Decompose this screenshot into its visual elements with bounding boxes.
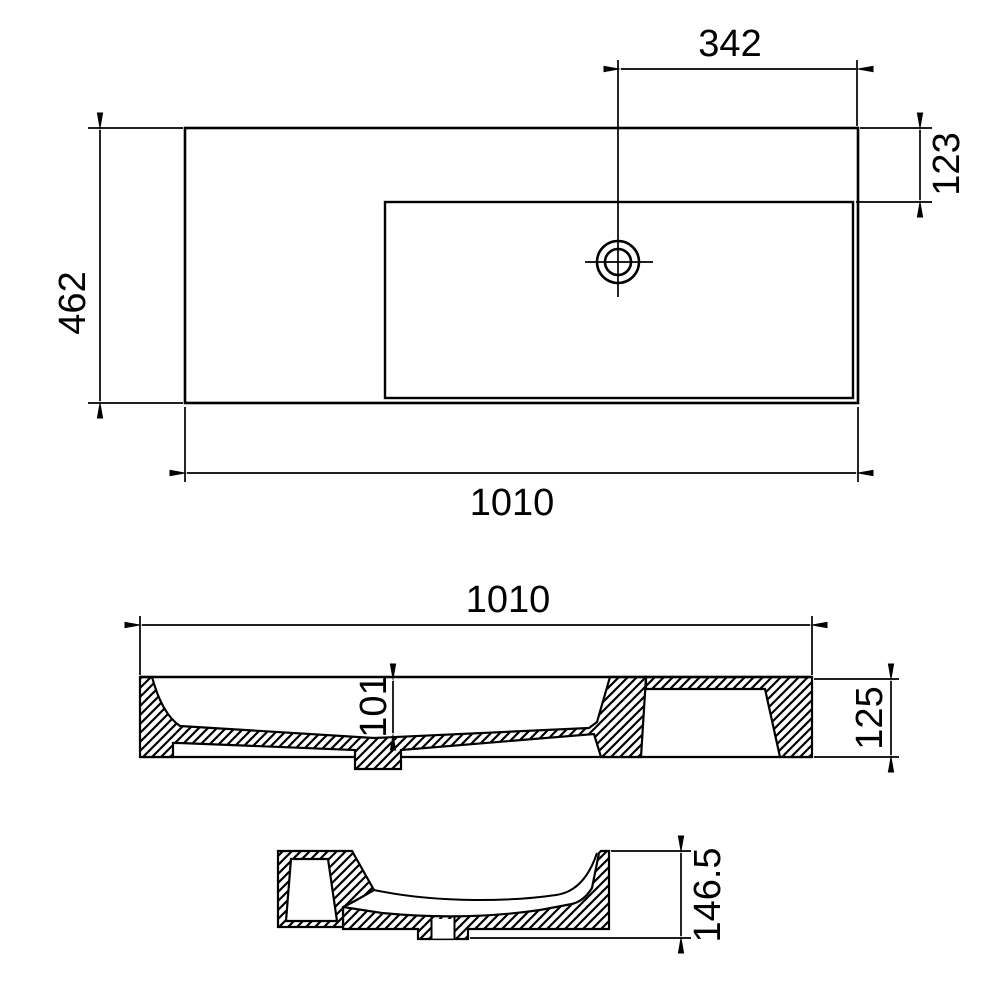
plan-basin-rect bbox=[385, 202, 853, 398]
technical-drawing-svg: 342 123 462 1010 10 bbox=[0, 0, 1000, 1000]
dim-462-label: 462 bbox=[52, 271, 94, 334]
dim-1010-front-label: 1010 bbox=[466, 579, 551, 621]
dim-125: 125 bbox=[814, 679, 899, 757]
front-section-view: 1010 101 125 bbox=[140, 579, 899, 769]
dim-125-label: 125 bbox=[849, 686, 891, 749]
dim-101-label: 101 bbox=[353, 674, 395, 737]
dim-123-label: 123 bbox=[926, 132, 968, 195]
front-cut-deck-and-foot bbox=[646, 677, 812, 757]
dim-101: 101 bbox=[353, 674, 395, 737]
dim-123: 123 bbox=[856, 128, 968, 202]
dim-1010-plan-label: 1010 bbox=[470, 482, 555, 524]
side-drain-opening bbox=[432, 919, 454, 939]
side-bowl-far-edge-curve bbox=[374, 853, 597, 900]
plan-view: 342 123 462 1010 bbox=[52, 23, 968, 524]
side-back-wall-recess bbox=[286, 859, 337, 921]
side-section-view: 146.5 bbox=[278, 847, 729, 942]
dim-1010-plan: 1010 bbox=[185, 407, 858, 524]
dim-342-label: 342 bbox=[698, 23, 761, 65]
dim-1010-front: 1010 bbox=[140, 579, 812, 675]
dim-462: 462 bbox=[52, 128, 183, 403]
dim-342: 342 bbox=[621, 23, 857, 126]
side-cut-floor-and-right-wall bbox=[343, 851, 609, 939]
drawing-canvas: 342 123 462 1010 10 bbox=[0, 0, 1000, 1000]
dim-146-5-label: 146.5 bbox=[687, 847, 729, 942]
